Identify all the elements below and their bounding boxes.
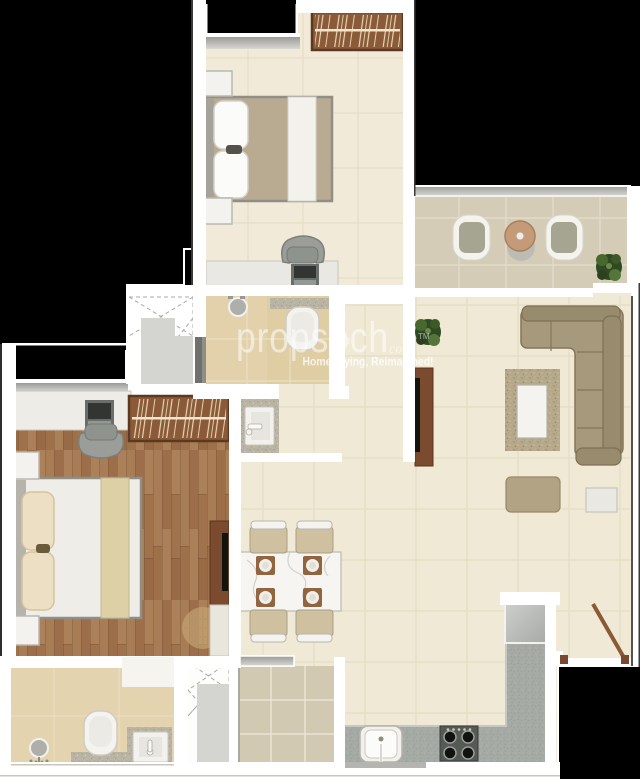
svg-text:com: com [389, 342, 412, 357]
svg-text:Homebuying, Reimagined!: Homebuying, Reimagined! [303, 357, 434, 369]
svg-text:propsoch: propsoch [236, 314, 389, 362]
svg-text:TM: TM [418, 332, 430, 341]
